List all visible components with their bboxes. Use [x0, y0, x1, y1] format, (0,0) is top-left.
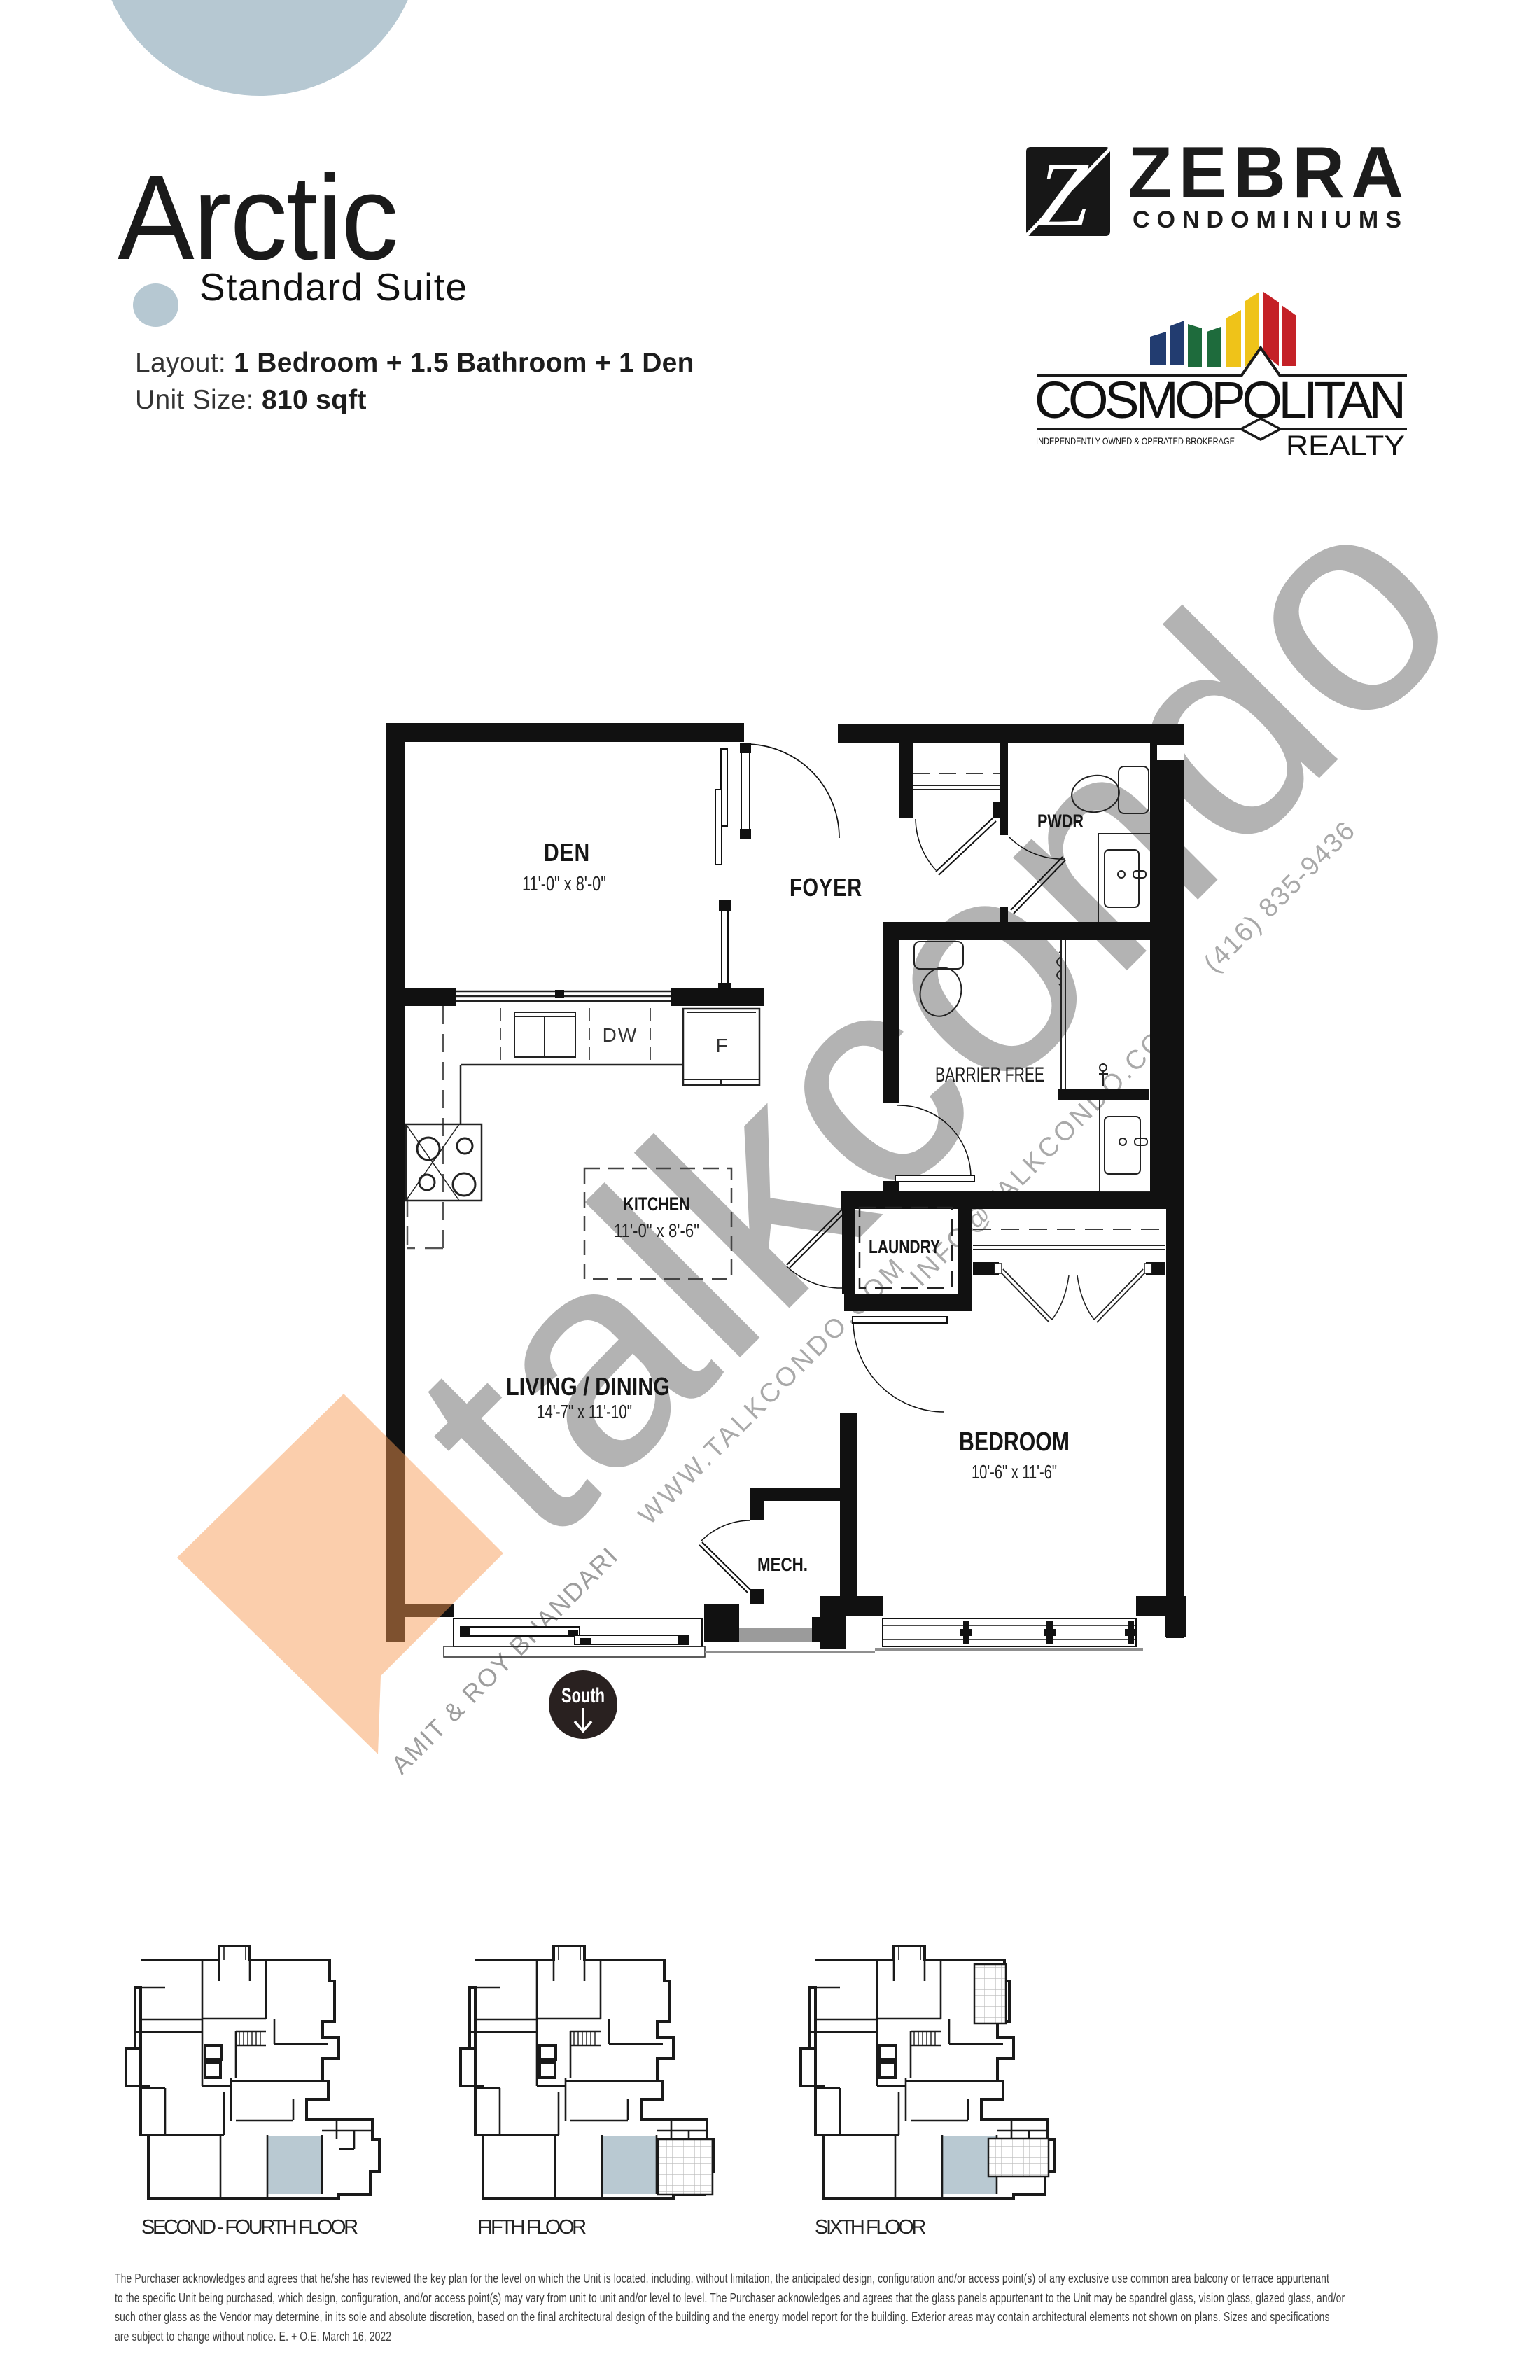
svg-text:BARRIER FREE: BARRIER FREE	[935, 1063, 1044, 1086]
svg-text:10'-6" x 11'-6": 10'-6" x 11'-6"	[972, 1461, 1057, 1483]
svg-text:F: F	[715, 1035, 727, 1056]
svg-text:FOYER: FOYER	[790, 873, 862, 902]
svg-text:KITCHEN: KITCHEN	[624, 1193, 690, 1214]
svg-text:11'-0" x 8'-0": 11'-0" x 8'-0"	[522, 873, 606, 895]
svg-text:PWDR: PWDR	[1037, 811, 1084, 832]
svg-text:14'-7" x 11'-10": 14'-7" x 11'-10"	[537, 1401, 632, 1422]
svg-text:DW: DW	[603, 1024, 638, 1046]
svg-text:LAUNDRY: LAUNDRY	[869, 1236, 940, 1257]
svg-text:COSMOPOLITAN: COSMOPOLITAN	[1035, 371, 1406, 429]
svg-text:LIVING / DINING: LIVING / DINING	[506, 1372, 670, 1401]
svg-text:MECH.: MECH.	[757, 1554, 808, 1575]
svg-text:INDEPENDENTLY OWNED & OPERATED: INDEPENDENTLY OWNED & OPERATED BROKERAGE	[1036, 435, 1235, 447]
svg-text:11'-0" x 8'-6": 11'-0" x 8'-6"	[614, 1220, 699, 1241]
svg-text:Z: Z	[1037, 143, 1089, 246]
svg-text:DEN: DEN	[544, 838, 590, 867]
svg-text:South: South	[561, 1684, 605, 1707]
svg-text:BEDROOM: BEDROOM	[959, 1427, 1070, 1457]
svg-text:REALTY: REALTY	[1286, 430, 1405, 461]
